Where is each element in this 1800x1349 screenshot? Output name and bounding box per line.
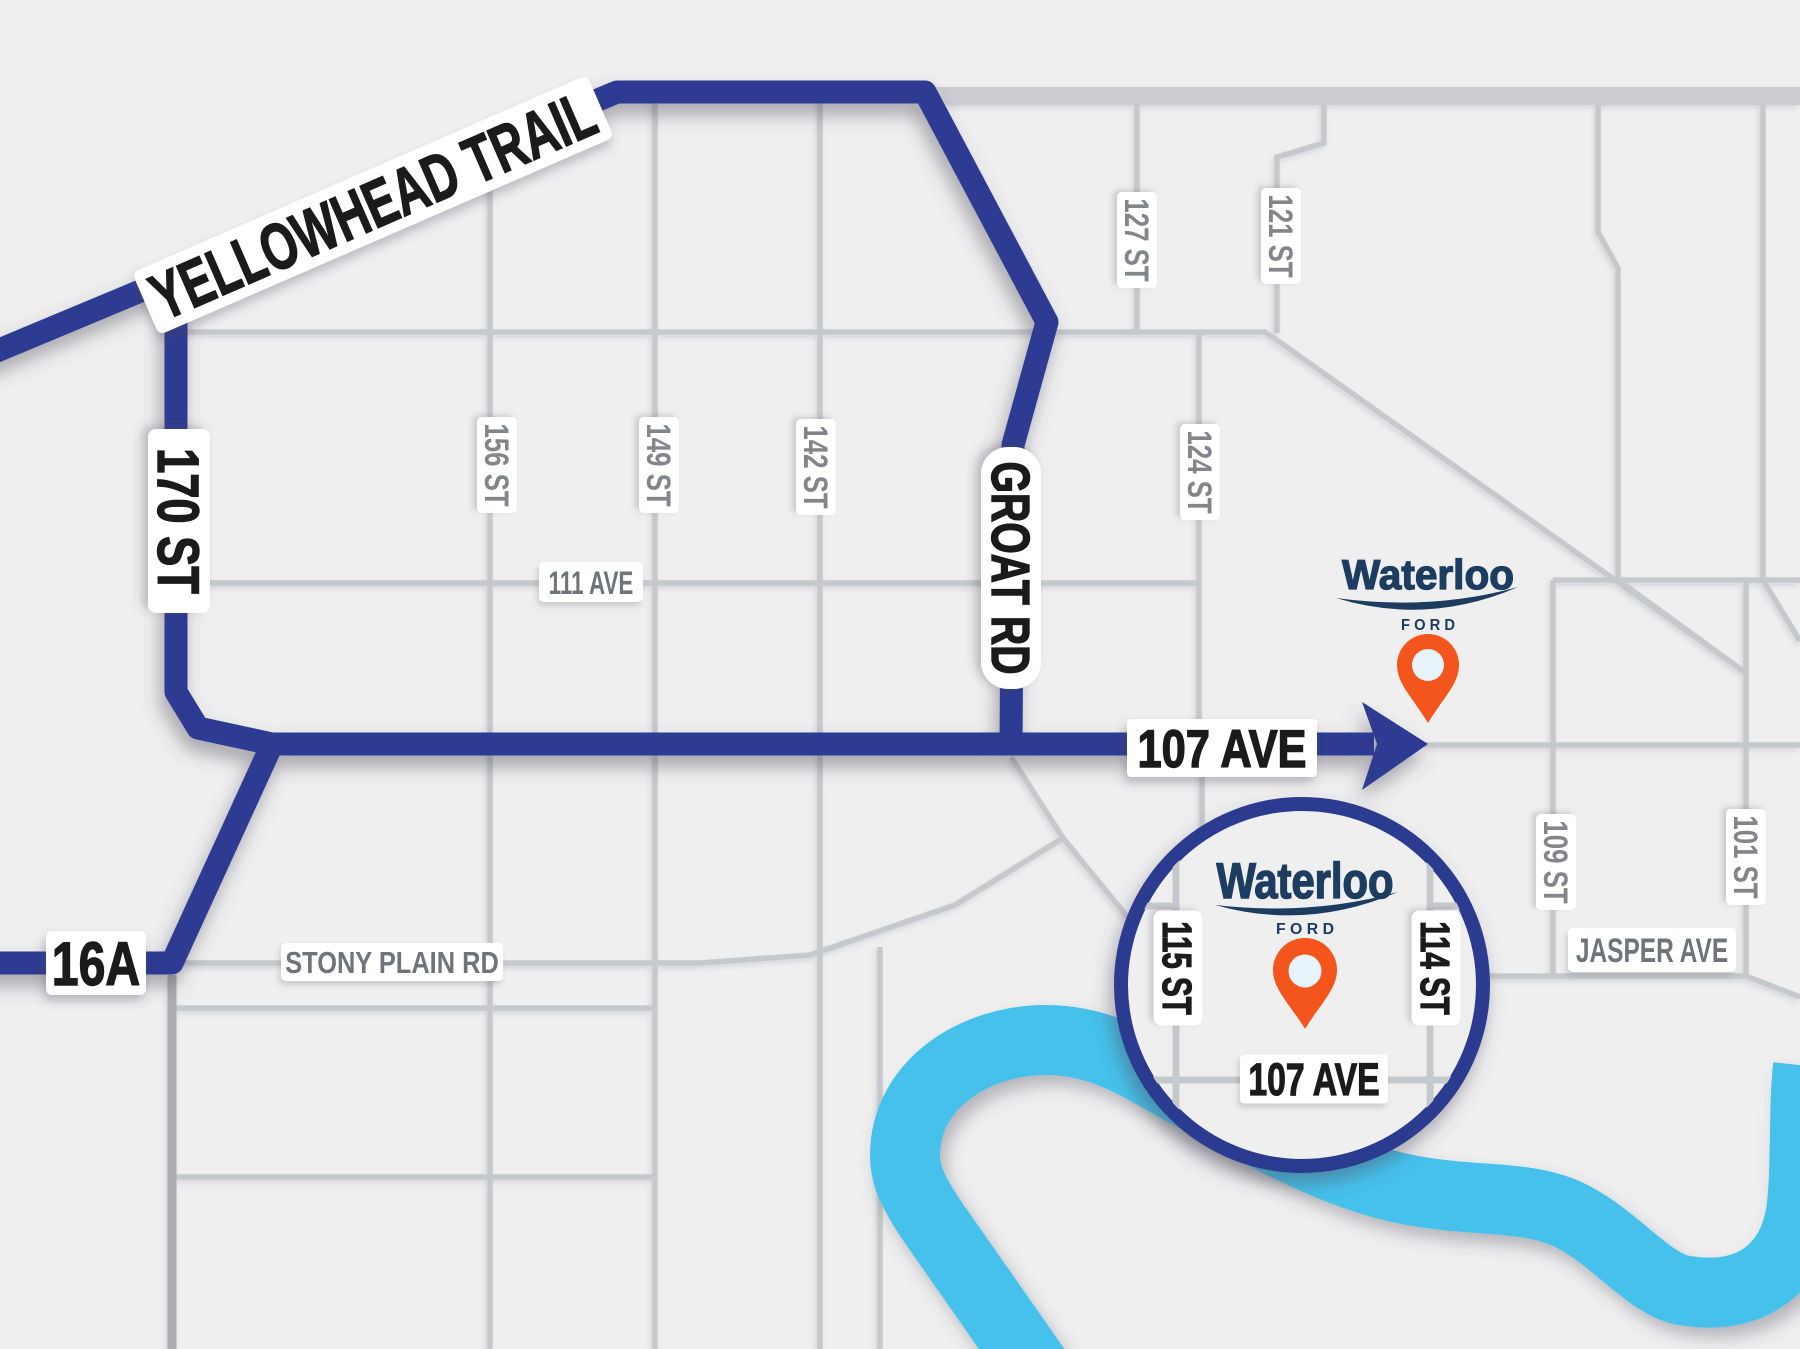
svg-text:107 AVE: 107 AVE [1248, 1055, 1379, 1105]
svg-text:149 ST: 149 ST [639, 423, 676, 507]
svg-text:F O R D: F O R D [1401, 617, 1455, 634]
svg-text:127 ST: 127 ST [1117, 198, 1154, 282]
svg-text:16A: 16A [52, 930, 140, 999]
svg-text:JASPER AVE: JASPER AVE [1576, 932, 1728, 970]
svg-text:115 ST: 115 ST [1154, 921, 1200, 1015]
svg-text:114 ST: 114 ST [1412, 921, 1458, 1015]
svg-text:142 ST: 142 ST [796, 425, 833, 509]
svg-text:101 ST: 101 ST [1726, 815, 1763, 899]
svg-text:156 ST: 156 ST [477, 423, 514, 507]
svg-text:170 ST: 170 ST [145, 448, 210, 594]
svg-text:107 AVE: 107 AVE [1137, 720, 1306, 779]
svg-text:GROAT RD: GROAT RD [980, 462, 1040, 675]
svg-text:111 AVE: 111 AVE [549, 565, 634, 601]
svg-text:121 ST: 121 ST [1261, 194, 1298, 278]
svg-text:Waterloo: Waterloo [1342, 551, 1514, 598]
svg-text:STONY PLAIN RD: STONY PLAIN RD [285, 946, 499, 981]
svg-text:109 ST: 109 ST [1536, 820, 1573, 904]
svg-text:124 ST: 124 ST [1180, 430, 1217, 514]
svg-text:F O R D: F O R D [1276, 921, 1334, 938]
